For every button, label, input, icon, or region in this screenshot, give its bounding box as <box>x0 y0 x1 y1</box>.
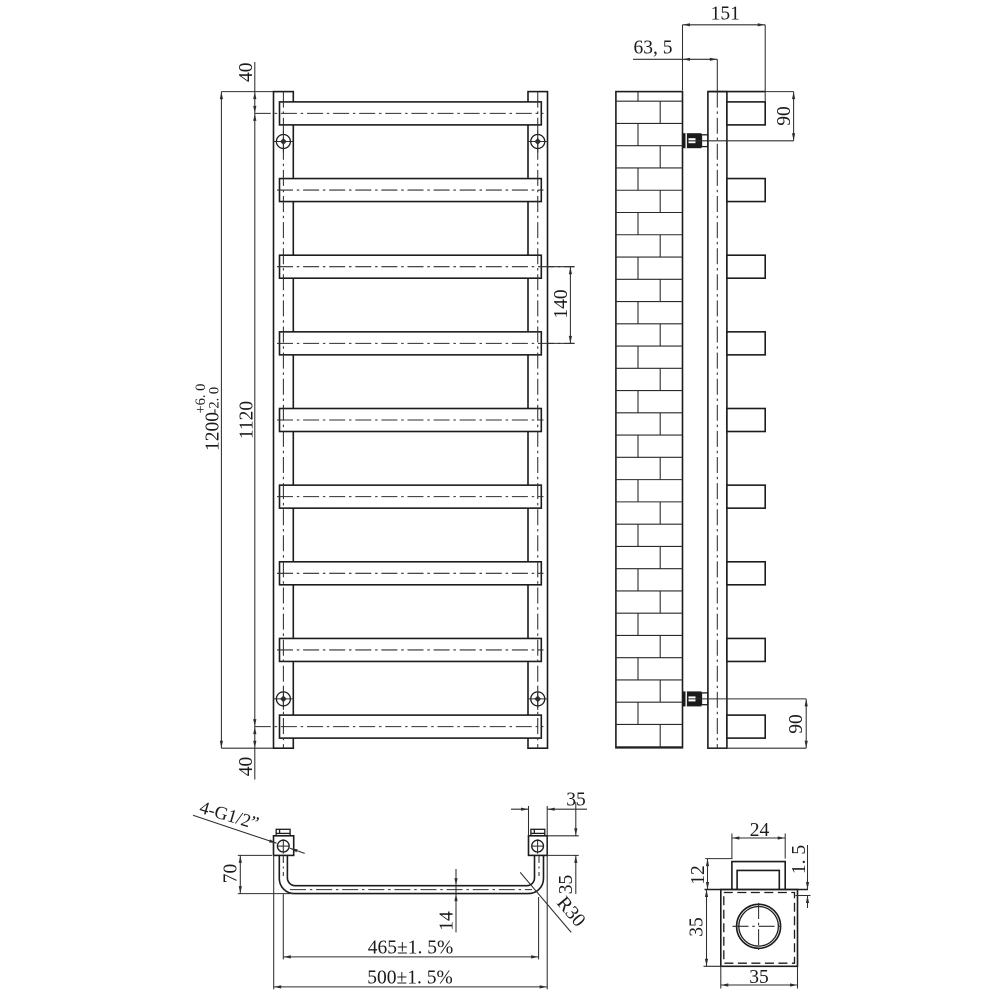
svg-text:14: 14 <box>437 911 458 931</box>
svg-text:90: 90 <box>786 714 807 734</box>
svg-text:1120: 1120 <box>236 401 257 439</box>
svg-text:35: 35 <box>687 917 708 937</box>
svg-text:35: 35 <box>556 875 577 895</box>
svg-text:1. 5: 1. 5 <box>789 845 810 874</box>
svg-text:12: 12 <box>688 865 709 885</box>
svg-text:63, 5: 63, 5 <box>634 38 673 59</box>
svg-text:40: 40 <box>236 62 257 82</box>
svg-text:40: 40 <box>236 757 257 777</box>
svg-text:90: 90 <box>774 106 795 126</box>
svg-text:1200: 1200 <box>203 412 224 451</box>
svg-text:140: 140 <box>551 289 572 318</box>
svg-text:465±1. 5%: 465±1. 5% <box>368 937 453 958</box>
svg-text:24: 24 <box>750 820 770 841</box>
svg-text:35: 35 <box>749 967 769 988</box>
svg-text:151: 151 <box>711 4 740 25</box>
svg-text:70: 70 <box>221 864 242 884</box>
svg-text:500±1. 5%: 500±1. 5% <box>367 967 452 988</box>
svg-text:-2. 0: -2. 0 <box>207 387 223 414</box>
